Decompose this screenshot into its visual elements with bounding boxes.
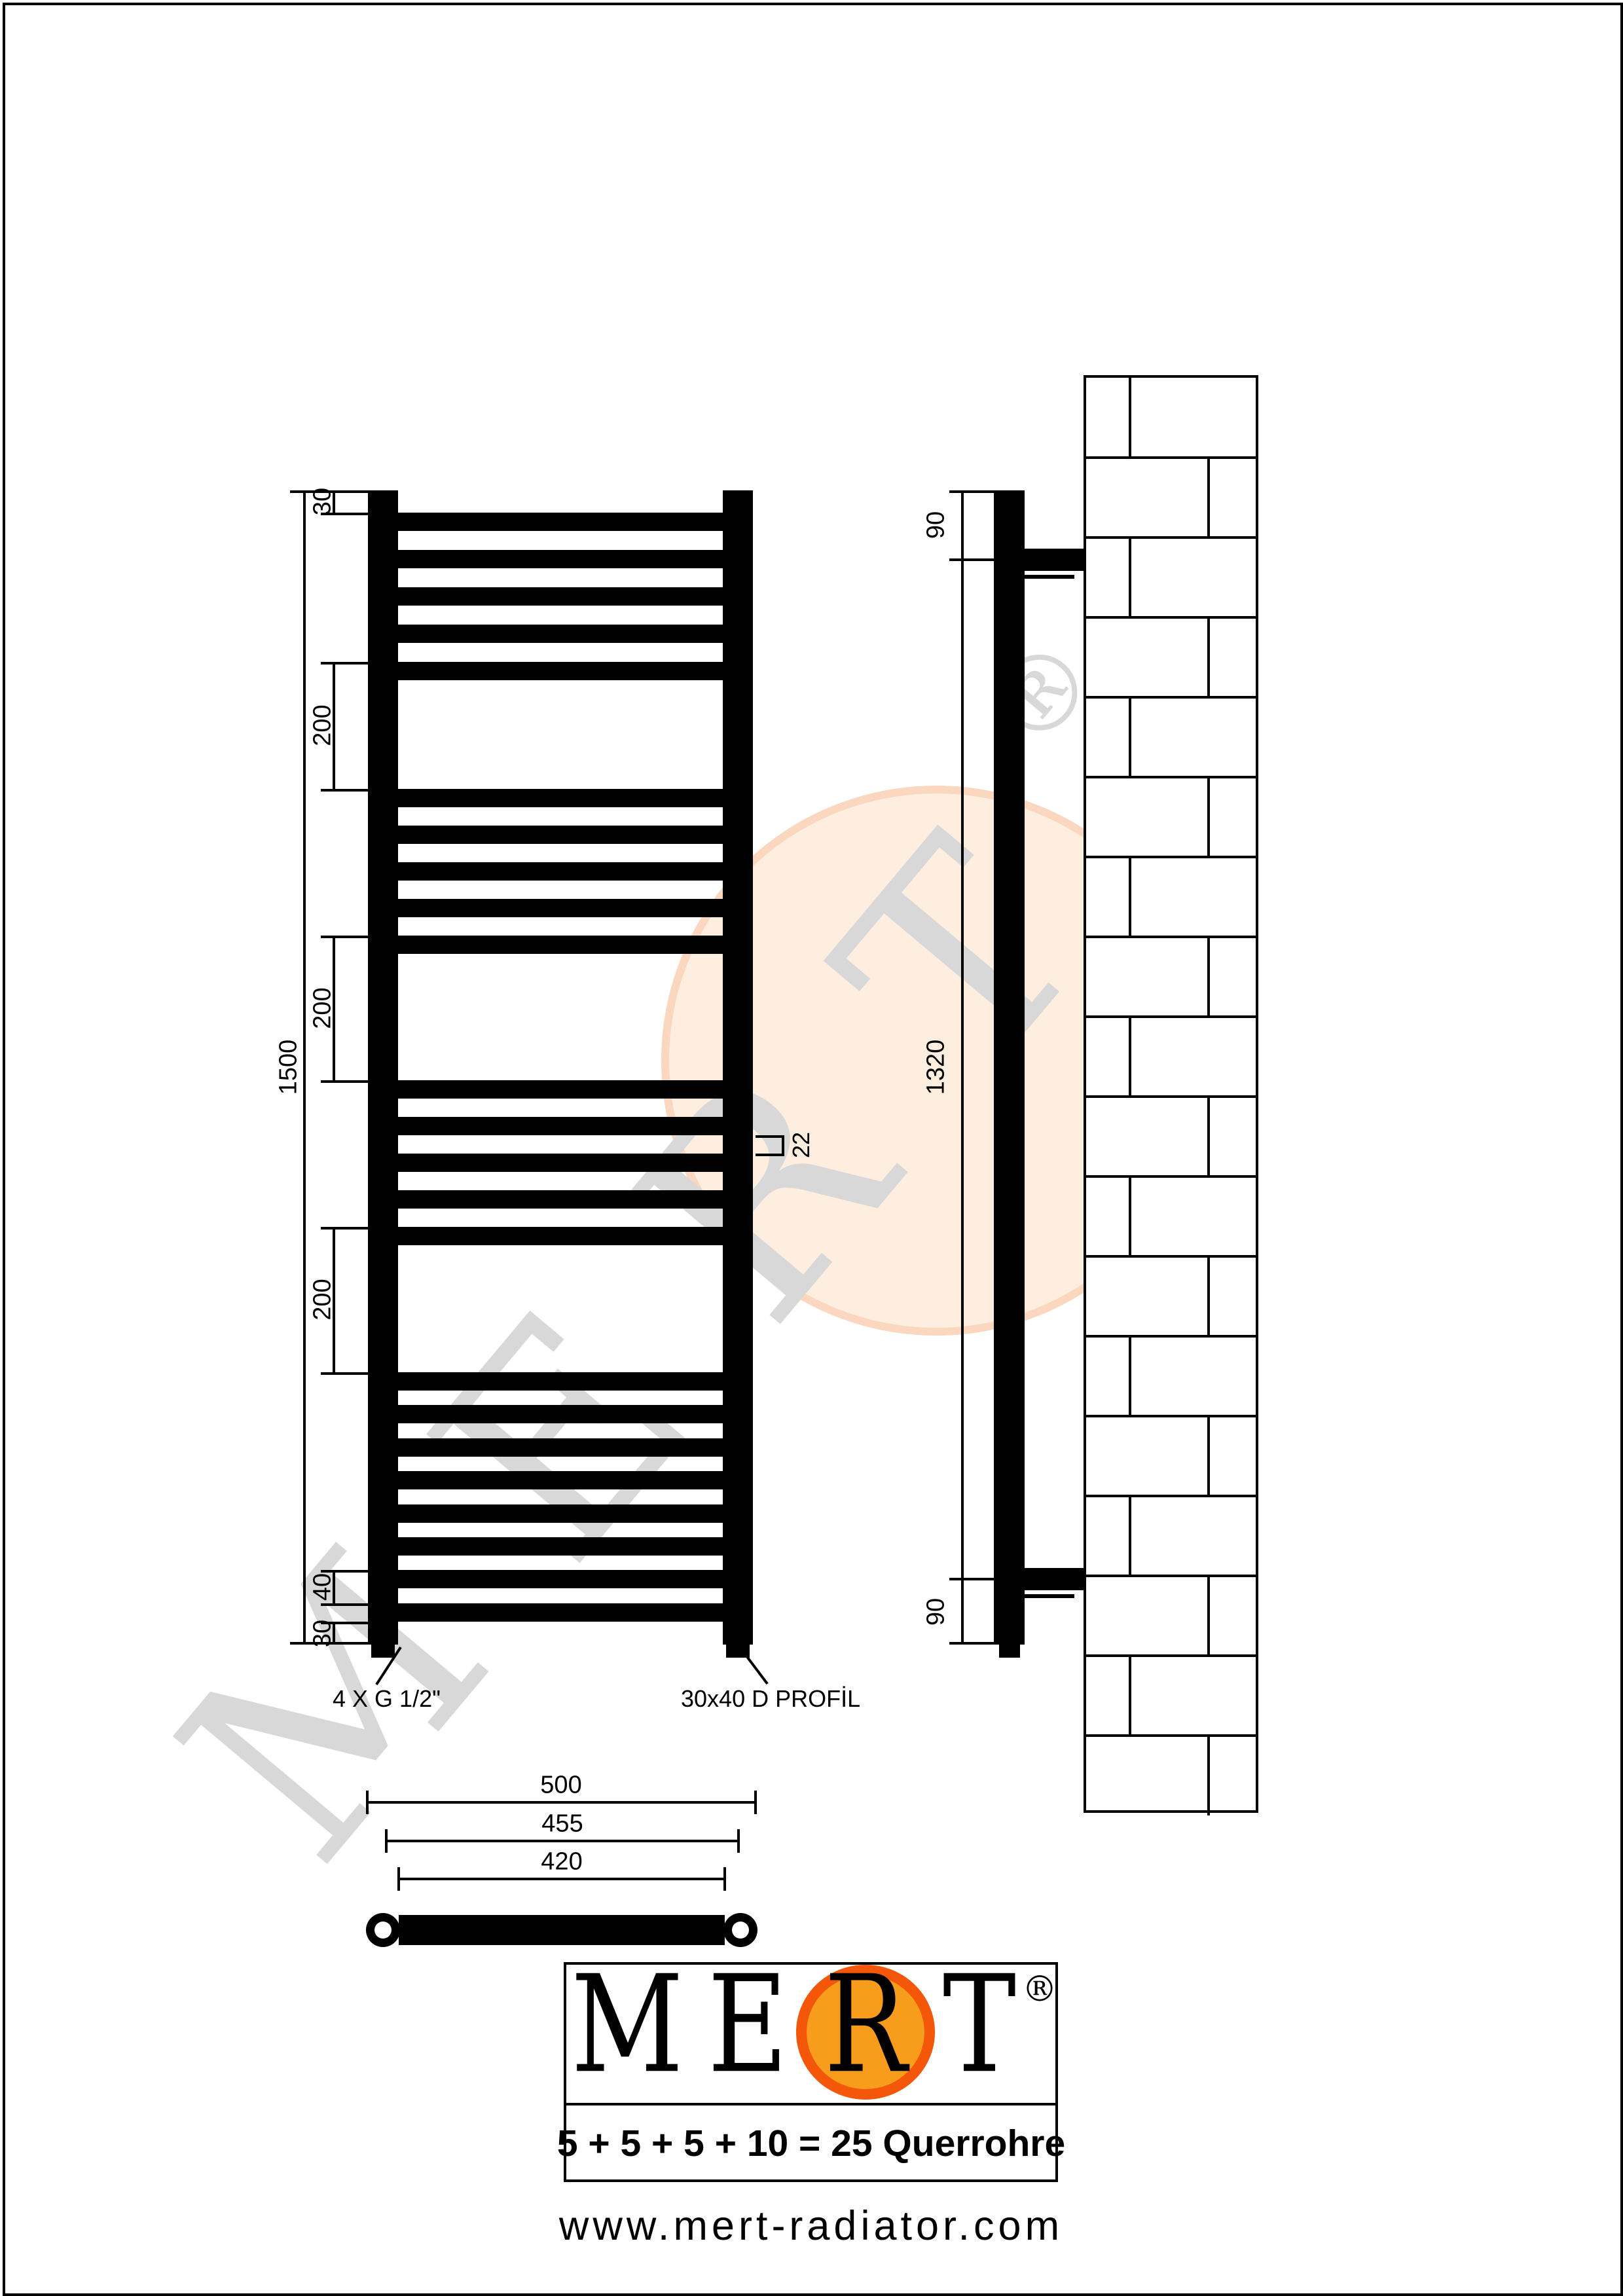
brick-course-line: [1086, 1575, 1256, 1577]
brick-joint-line: [1129, 378, 1131, 458]
cross-tube: [398, 1190, 723, 1209]
dim-label-40: 40: [309, 1573, 337, 1601]
cross-tube: [398, 513, 723, 531]
logo-letter-t: T: [943, 1958, 1016, 2092]
brick-joint-line: [1207, 458, 1210, 538]
cross-tube: [398, 1227, 723, 1245]
dim-tick: [321, 662, 368, 665]
logo-registered-mark: ®: [1022, 1969, 1057, 2010]
logo-formula: 5 + 5 + 5 + 10 = 25 Querrohre: [557, 2122, 1065, 2165]
cross-tube: [398, 1372, 723, 1391]
cross-tube: [398, 1537, 723, 1556]
dim-tick: [737, 1829, 740, 1853]
logo-letter-e: E: [708, 1958, 788, 2092]
brick-joint-line: [1207, 617, 1210, 697]
brick-wall: [1084, 375, 1258, 1813]
dim-label-200-3: 200: [309, 1279, 337, 1320]
cross-tube: [398, 1080, 723, 1099]
dim-label-90-top: 90: [922, 511, 951, 539]
dim-tick: [949, 558, 994, 561]
brick-course-line: [1086, 1495, 1256, 1497]
logo-letter-m: M: [571, 1958, 684, 2092]
brick-joint-line: [1129, 1017, 1131, 1097]
dim-tick: [321, 789, 368, 792]
brick-course-line: [1086, 1255, 1256, 1258]
logo-website: www.mert-radiator.com: [559, 2202, 1063, 2250]
dim-line-1500: [303, 490, 306, 1645]
brick-course-line: [1086, 536, 1256, 539]
brick-course-line: [1086, 616, 1256, 619]
brick-joint-line: [1207, 1256, 1210, 1336]
brick-joint-line: [1129, 1656, 1131, 1736]
dim-tick: [949, 1642, 994, 1645]
tube-top-view: [399, 1915, 725, 1945]
cross-tube: [398, 1570, 723, 1588]
cross-tube: [398, 625, 723, 643]
logo-divider: [564, 2103, 1058, 2105]
dim-tick: [321, 1080, 368, 1083]
dim-label-30-bottom: 30: [309, 1620, 337, 1647]
dim-line-500: [367, 1801, 756, 1804]
dim-label-22: 22: [788, 1132, 815, 1158]
dim-tick: [756, 1154, 784, 1156]
brick-joint-line: [1129, 538, 1131, 617]
dim-tick: [366, 1791, 369, 1814]
brick-joint-line: [1129, 1496, 1131, 1576]
leader-label-connections: 4 X G 1/2": [333, 1685, 441, 1713]
front-left-collector: [368, 490, 398, 1645]
dim-tick: [321, 1570, 368, 1573]
brick-joint-line: [1207, 937, 1210, 1017]
dim-line-455: [386, 1840, 739, 1842]
dim-tick: [321, 1227, 368, 1230]
dim-tick: [321, 1603, 368, 1606]
cross-tube: [398, 789, 723, 807]
brick-course-line: [1086, 1654, 1256, 1657]
dim-label-500: 500: [540, 1772, 581, 1800]
cross-tube: [398, 1438, 723, 1457]
dim-tick: [754, 1791, 757, 1814]
side-connection-stub: [999, 1645, 1020, 1658]
collector-ring-right-hole: [732, 1922, 749, 1939]
dim-label-90-bottom: 90: [922, 1598, 951, 1626]
brick-course-line: [1086, 1335, 1256, 1338]
brick-joint-line: [1207, 1576, 1210, 1656]
wall-bracket-bottom-plate: [1025, 1594, 1074, 1598]
cross-tube: [398, 1117, 723, 1135]
dim-label-1320: 1320: [922, 1040, 951, 1095]
brick-joint-line: [1207, 1416, 1210, 1496]
wall-bracket-bottom: [1025, 1568, 1084, 1590]
cross-tube: [398, 862, 723, 881]
dim-tick: [397, 1867, 400, 1891]
dim-label-200-1: 200: [309, 704, 337, 746]
cross-tube: [398, 1405, 723, 1423]
wall-bracket-top: [1025, 549, 1084, 571]
dim-line-22: [782, 1135, 784, 1156]
brick-joint-line: [1207, 1736, 1210, 1815]
brick-joint-line: [1129, 1336, 1131, 1416]
dim-line-420: [399, 1878, 725, 1880]
dim-tick: [949, 490, 994, 493]
cross-tube: [398, 1504, 723, 1523]
brick-joint-line: [1207, 1097, 1210, 1176]
cross-tube: [398, 587, 723, 606]
dim-tick: [723, 1867, 726, 1891]
cross-tube: [398, 1154, 723, 1172]
dim-tick: [756, 1135, 784, 1138]
cross-tube: [398, 1471, 723, 1489]
side-radiator-profile: [994, 490, 1025, 1645]
brick-course-line: [1086, 1734, 1256, 1737]
cross-tube: [398, 936, 723, 954]
dim-tick: [385, 1829, 388, 1853]
brick-course-line: [1086, 1095, 1256, 1098]
collector-ring-left-hole: [374, 1922, 392, 1939]
cross-tube: [398, 662, 723, 680]
cross-tube: [398, 550, 723, 568]
dim-tick: [321, 936, 368, 938]
brick-course-line: [1086, 456, 1256, 459]
dim-label-30-top: 30: [309, 488, 337, 515]
dim-label-1500: 1500: [275, 1040, 303, 1095]
front-left-connection-stub: [371, 1645, 395, 1658]
dim-tick: [321, 1372, 368, 1375]
leader-label-profile: 30x40 D PROFİL: [681, 1685, 860, 1713]
cross-tube: [398, 826, 723, 844]
cross-tube: [398, 899, 723, 917]
brick-joint-line: [1129, 1176, 1131, 1256]
dim-tick: [949, 1578, 994, 1580]
cross-tube: [398, 1603, 723, 1622]
wall-bracket-top-plate: [1025, 575, 1074, 579]
dim-label-200-2: 200: [309, 987, 337, 1029]
brick-course-line: [1086, 1175, 1256, 1178]
brick-course-line: [1086, 1415, 1256, 1417]
dim-line-side: [961, 490, 964, 1645]
logo-letter-r: R: [824, 1958, 907, 2092]
front-right-collector: [723, 490, 753, 1645]
drawing-sheet: MERT® 1500 30 200 200 200 40 30 22 4 X G…: [0, 0, 1623, 2296]
dim-label-455: 455: [541, 1810, 583, 1838]
dim-label-420: 420: [541, 1848, 582, 1876]
